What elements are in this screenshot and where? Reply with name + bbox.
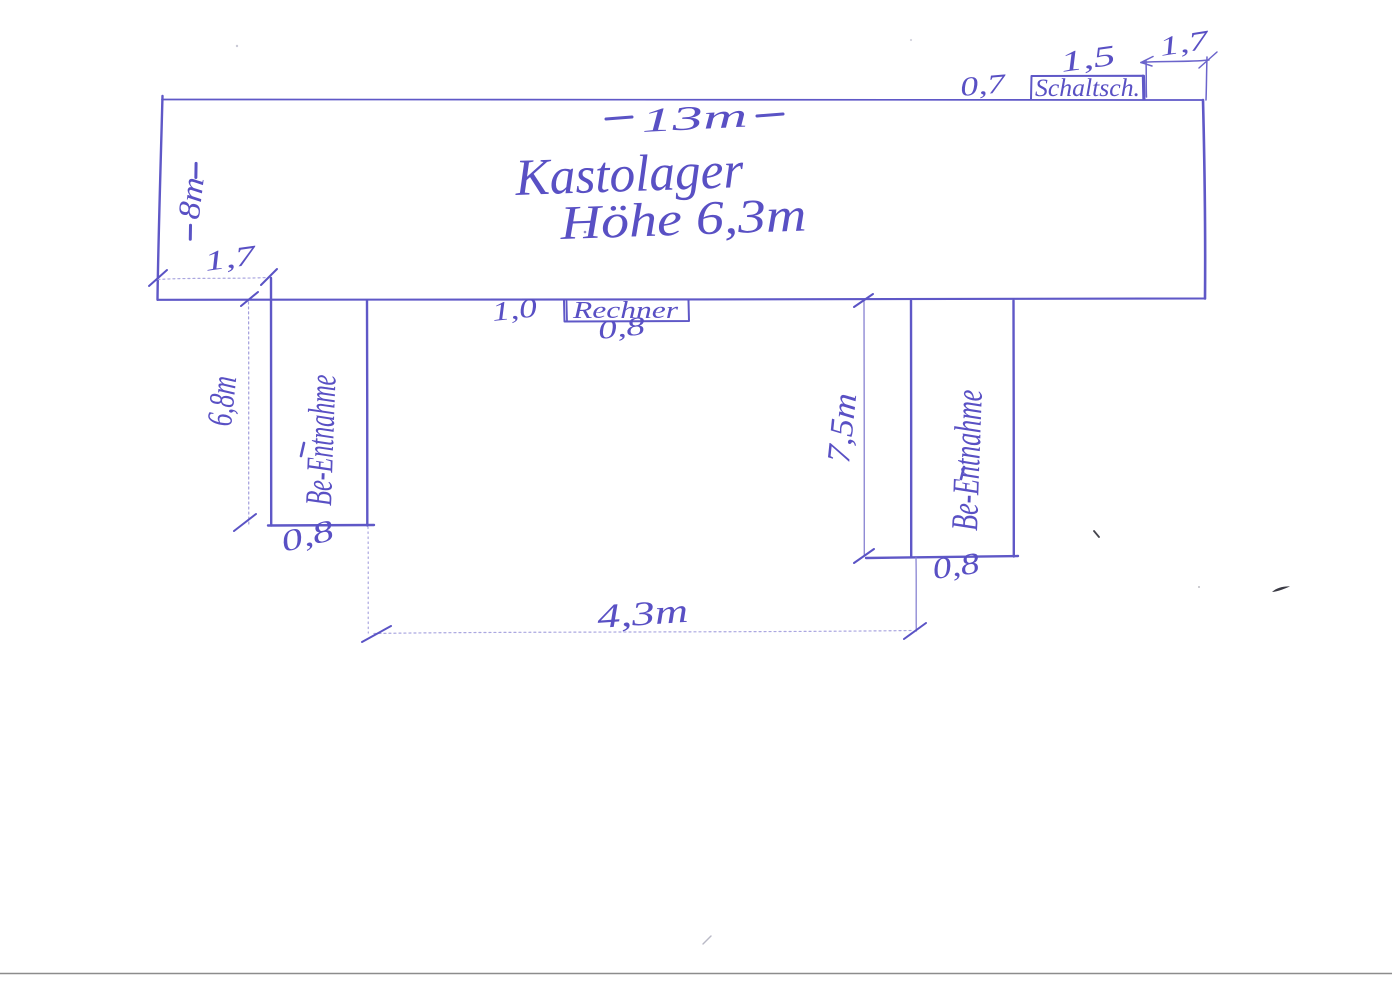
svg-text:1,0: 1,0 (490, 292, 539, 327)
svg-text:1,5: 1,5 (1059, 40, 1118, 79)
svg-text:0,7: 0,7 (959, 68, 1008, 102)
svg-text:8m: 8m (171, 175, 211, 221)
svg-text:Höhe 6,3m: Höhe 6,3m (558, 188, 807, 250)
svg-text:0,8: 0,8 (930, 547, 981, 586)
svg-text:Schaltsch.: Schaltsch. (1035, 75, 1140, 102)
svg-text:13m: 13m (640, 97, 748, 139)
svg-text:6,8m: 6,8m (199, 374, 244, 428)
svg-text:1,7: 1,7 (1157, 24, 1212, 62)
svg-text:4,3m: 4,3m (596, 593, 689, 636)
svg-text:7,5m: 7,5m (821, 391, 864, 464)
svg-text:Be-Entnahme: Be-Entnahme (298, 374, 345, 506)
svg-text:0,8: 0,8 (597, 311, 647, 345)
svg-text:Be-Entnahme: Be-Entnahme (944, 389, 991, 531)
svg-text:1,7: 1,7 (203, 240, 259, 278)
svg-text:0,8: 0,8 (278, 514, 337, 559)
